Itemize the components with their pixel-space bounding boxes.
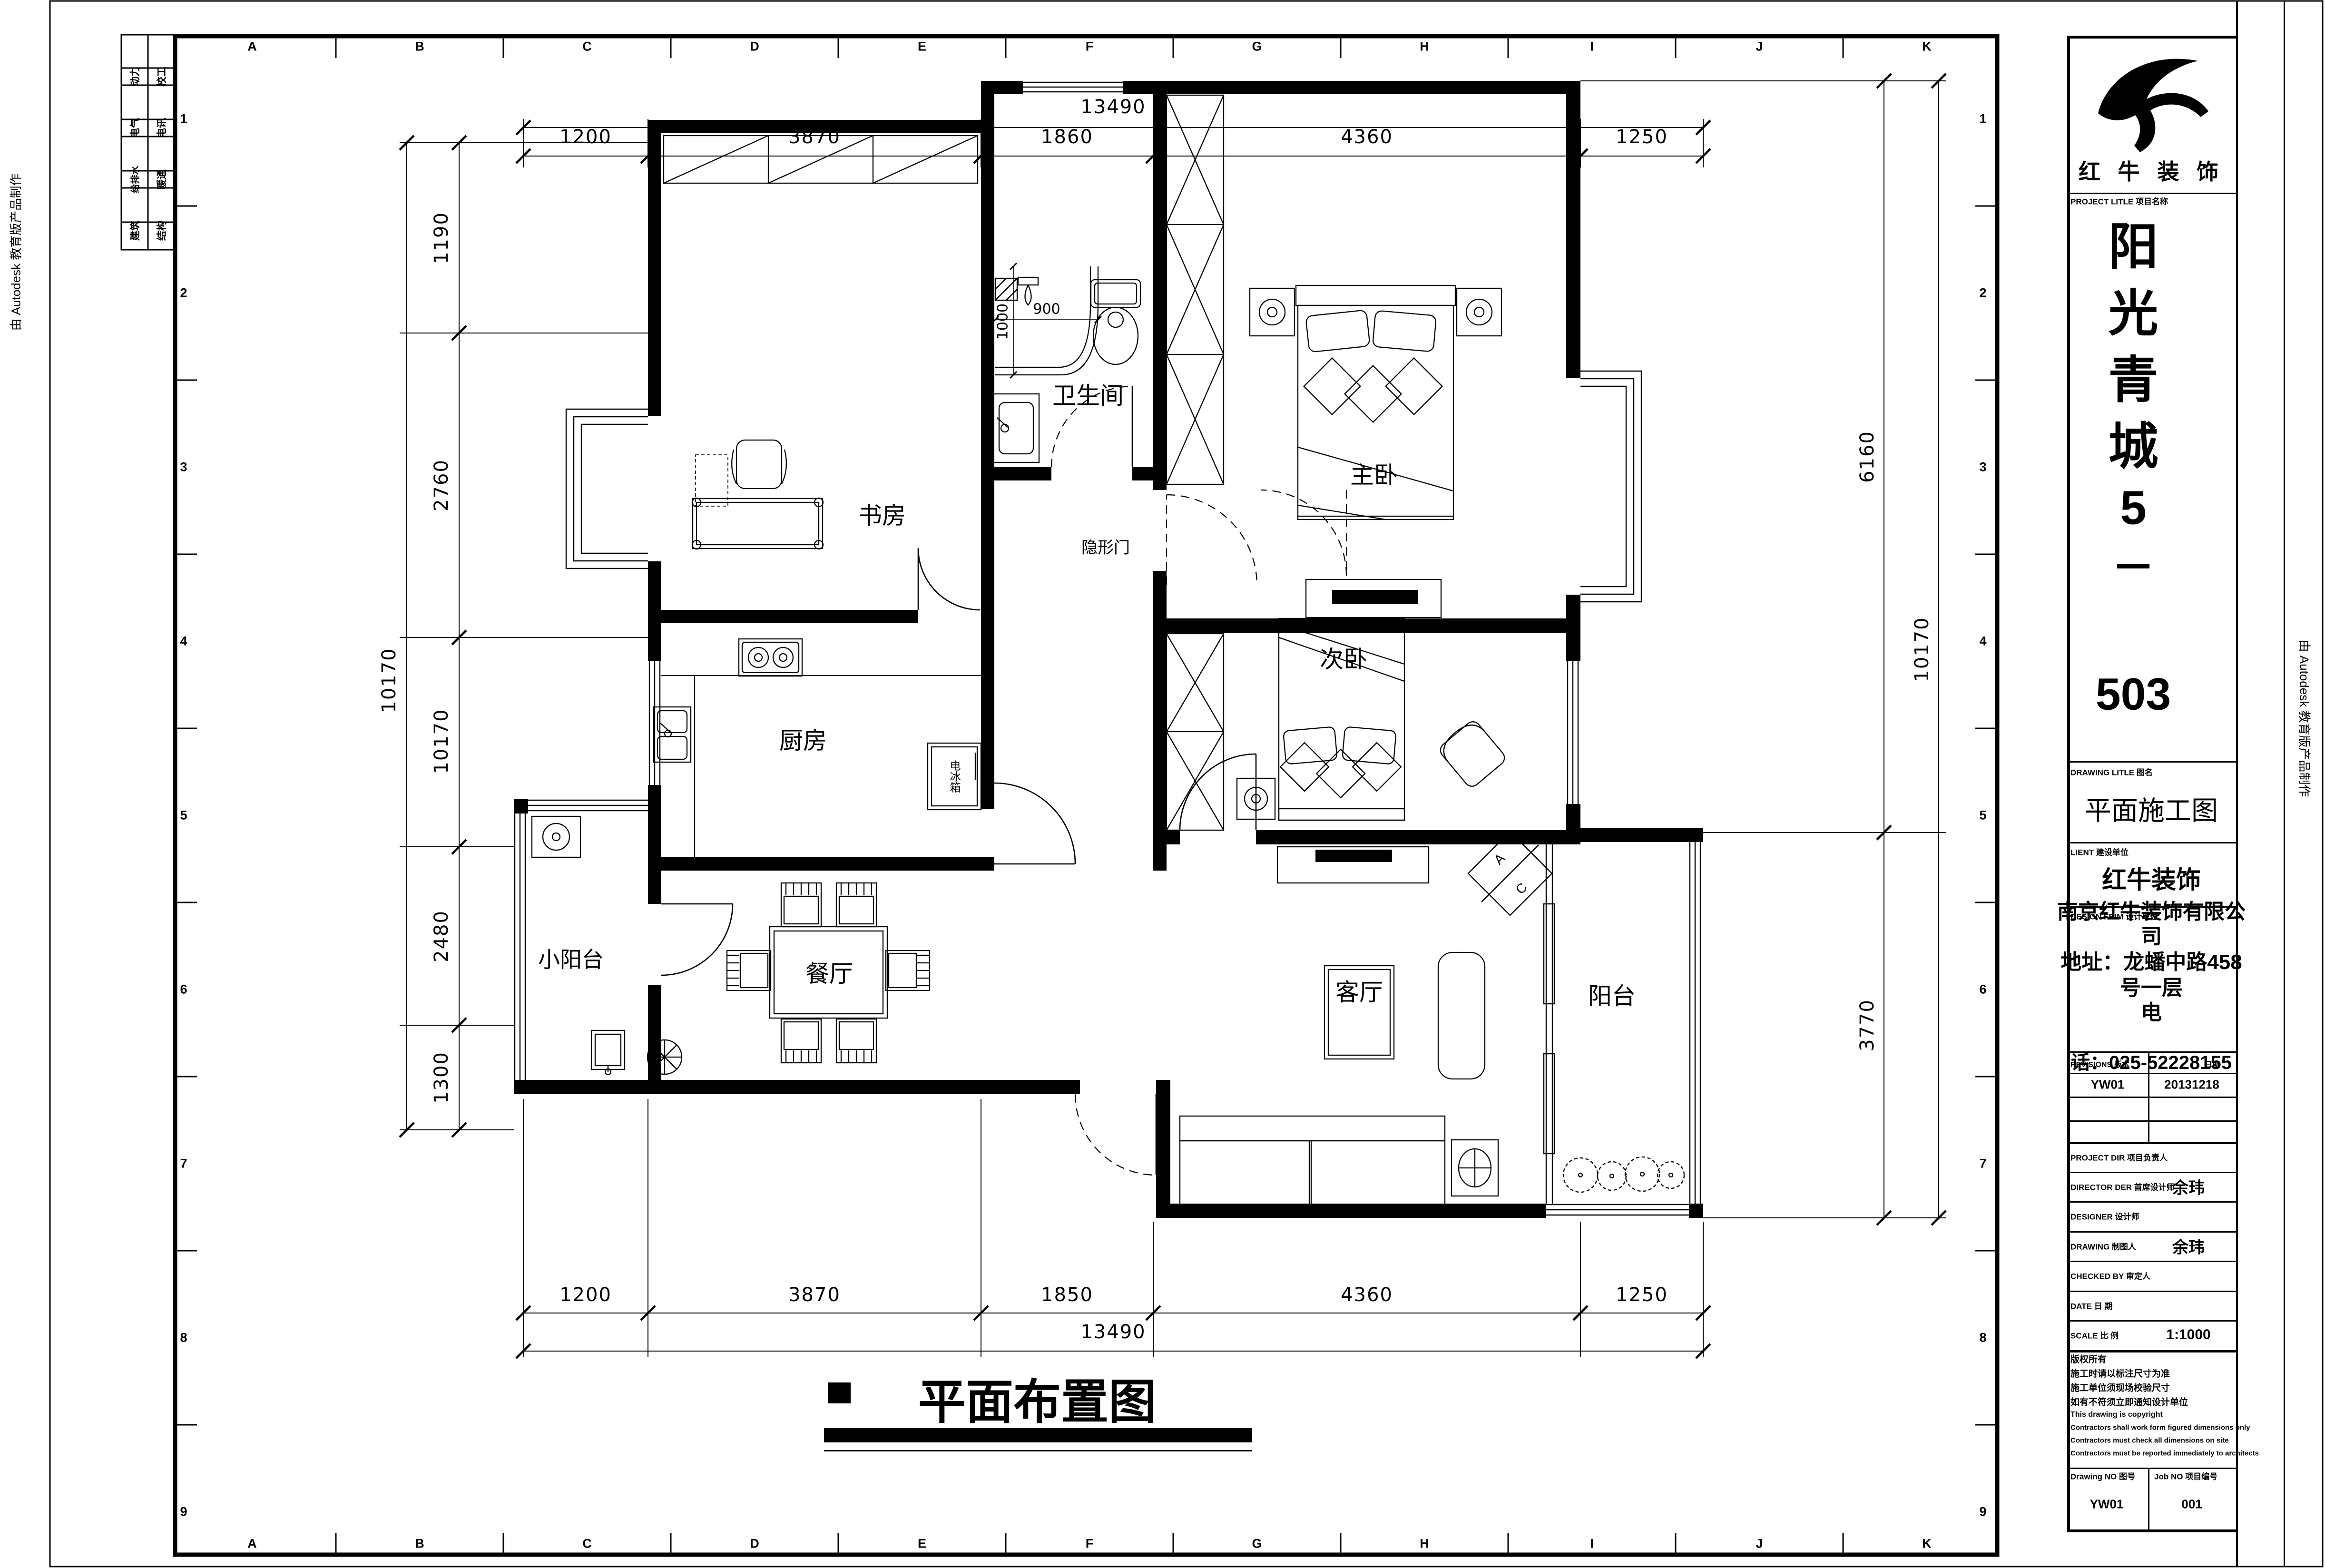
grid-letter: D: [750, 39, 759, 54]
copyright-line: 如有不符须立即通知设计单位: [2070, 1395, 2188, 1408]
discipline-cell: 电气: [128, 118, 142, 138]
discipline-cell: 校工: [154, 67, 168, 87]
grid-letter: E: [918, 39, 926, 54]
grid-letter: G: [1252, 39, 1262, 54]
dim-right-total: 10170: [1911, 617, 1933, 682]
project-label: PROJECT LITLE 项目名称: [2070, 195, 2168, 207]
room-label-second: 次卧: [1320, 640, 1367, 675]
project-name-char: 阳: [2108, 206, 2158, 279]
shower-dim-900: 900: [1033, 301, 1060, 318]
person-row-label: PROJECT DIR 项目负责人: [2070, 1151, 2168, 1163]
client-label: LIENT 建设单位: [2070, 846, 2129, 858]
dimension-lines: [400, 81, 1946, 1357]
dimension-ticks: [400, 74, 1946, 1358]
dim-bottom-seg: 1250: [1616, 1284, 1668, 1306]
grid-number: 1: [180, 112, 187, 127]
floorplan-linework: [0, 0, 2325, 1568]
dim-left-seg: 2760: [431, 459, 452, 511]
autodesk-watermark-right: 由 Autodesk 教育版产品制作: [2296, 640, 2314, 797]
fridge-label: 电冰箱: [946, 760, 962, 793]
grid-letter: B: [415, 1537, 424, 1551]
dim-top-seg: 3870: [788, 126, 841, 148]
title-underline-thin: [824, 1450, 1252, 1451]
shower-dim-1000: 1000: [995, 304, 1011, 340]
grid-number: 5: [180, 808, 187, 823]
project-name-char: －: [2112, 533, 2155, 595]
autodesk-watermark-left: 由 Autodesk 教育版产品制作: [7, 174, 24, 331]
grid-letter: D: [750, 1537, 759, 1551]
copyright-line: 施工单位须现场校验尺寸: [2070, 1381, 2170, 1394]
furniture: [532, 95, 1684, 1210]
copyright-line: 版权所有: [2070, 1352, 2107, 1365]
discipline-cell: 电讯: [154, 118, 168, 138]
person-row-label: DATE 日 期: [2070, 1300, 2112, 1312]
person-row-label: DIRECTOR DER 首席设计师: [2070, 1181, 2175, 1193]
job-no-value: 001: [2181, 1497, 2202, 1512]
person-row-label: DRAWING 制图人: [2070, 1240, 2136, 1252]
project-name-char: 城: [2108, 406, 2158, 479]
person-row-label: CHECKED BY 审定人: [2070, 1270, 2150, 1282]
dim-top-seg: 1860: [1041, 126, 1093, 148]
hidden-door-label: 隐形门: [1081, 535, 1130, 558]
job-no-label: Job NO 项目编号: [2154, 1470, 2217, 1482]
windows: [514, 82, 1703, 1218]
room-label-master: 主卧: [1350, 456, 1398, 490]
person-row-label: DESIGNER 设计师: [2070, 1210, 2139, 1222]
grid-letter: A: [247, 39, 257, 54]
drawing-no-value: YW01: [2090, 1497, 2124, 1512]
copyright-line: This drawing is copyright: [2070, 1411, 2163, 1419]
person-row-value: 余玮: [2172, 1235, 2205, 1258]
dim-left-total: 10170: [378, 647, 400, 713]
room-label-balcony: 阳台: [1588, 977, 1636, 1011]
grid-number: 1: [1979, 112, 1986, 127]
design-firm-line: 电: [2141, 995, 2162, 1026]
copyright-line: 施工时请以标注尺寸为准: [2070, 1367, 2170, 1380]
grid-number: 4: [1979, 634, 1986, 649]
discipline-cell: 给排水: [128, 166, 141, 193]
person-row-label: SCALE 比 例: [2070, 1329, 2119, 1341]
company-name: 红 牛 装 饰: [2079, 155, 2224, 186]
grid-number: 7: [180, 1156, 187, 1171]
copyright-line: Contractors must be reported immediately…: [2070, 1450, 2259, 1458]
project-name-char: 光: [2108, 273, 2158, 345]
grid-number: 8: [1979, 1331, 1986, 1345]
grid-letter: G: [1252, 1537, 1262, 1551]
grid-number: 9: [1979, 1505, 1986, 1519]
title-underline-thick: [824, 1428, 1252, 1442]
dim-top-seg: 1200: [559, 126, 612, 148]
room-label-small-balcony: 小阳台: [538, 942, 604, 974]
revision-date: 20131218: [2164, 1078, 2219, 1092]
person-row-value: 1:1000: [2166, 1327, 2210, 1343]
walls: [514, 81, 1703, 1218]
grid-letter: J: [1756, 1537, 1763, 1551]
grid-letter: K: [1922, 39, 1932, 54]
grid-number: 6: [180, 982, 187, 997]
dim-right-seg: 3770: [1856, 999, 1878, 1051]
room-label-living: 客厅: [1335, 973, 1383, 1008]
room-label-bath: 卫生间: [1052, 377, 1124, 411]
discipline-cell: 建筑: [128, 221, 142, 241]
dim-top-seg: 4360: [1341, 126, 1393, 148]
project-name-char: 5: [2120, 481, 2147, 536]
grid-letter: I: [1590, 39, 1594, 54]
discipline-cell: 动力: [128, 67, 142, 87]
dim-top-seg: 1250: [1616, 126, 1668, 148]
discipline-cell: 结构: [154, 221, 168, 241]
dim-left-seg: 1300: [431, 1051, 452, 1104]
grid-letter: E: [918, 1537, 926, 1551]
dim-bottom-seg: 3870: [788, 1284, 841, 1306]
grid-letter: I: [1590, 1537, 1594, 1551]
project-name-number: 503: [2096, 669, 2171, 721]
dim-bottom-total: 13490: [1080, 1321, 1146, 1343]
discipline-cell: 暖通: [154, 169, 168, 189]
grid-number: 3: [1979, 460, 1986, 475]
client-name: 红牛装饰: [2102, 860, 2201, 896]
drawing-no-label: Drawing NO 图号: [2070, 1470, 2135, 1482]
grid-number: 2: [1979, 286, 1986, 301]
plan-title: 平面布置图: [918, 1363, 1156, 1432]
grid-letter: B: [415, 39, 424, 54]
grid-letter: J: [1756, 39, 1763, 54]
title-corner-mark: [828, 1382, 851, 1403]
dim-right-seg: 6160: [1856, 431, 1878, 483]
grid-letter: F: [1086, 1537, 1094, 1551]
dim-bottom-seg: 1850: [1041, 1284, 1093, 1306]
grid-letter: H: [1420, 1537, 1429, 1551]
project-name-char: 青: [2108, 340, 2158, 412]
copyright-line: Contractors shall work form figured dime…: [2070, 1424, 2250, 1432]
revision-no: YW01: [2091, 1078, 2125, 1092]
grid-letter: C: [582, 1537, 592, 1551]
grid-letter: A: [247, 1537, 257, 1551]
dim-left-seg: 2480: [431, 910, 452, 962]
grid-number: 7: [1979, 1156, 1986, 1171]
grid-letter: C: [582, 39, 592, 54]
grid-number: 4: [180, 634, 187, 649]
drawing-title-label: DRAWING LITLE 图名: [2070, 766, 2153, 778]
grid-number: 5: [1979, 808, 1986, 823]
grid-number: 6: [1979, 982, 1986, 997]
dim-left-seg: 10170: [431, 708, 452, 774]
rednow-bull-logo: [2089, 42, 2222, 156]
grid-letter: K: [1922, 1537, 1932, 1551]
grid-letter: F: [1086, 39, 1094, 54]
grid-number: 3: [180, 460, 187, 475]
copyright-line: Contractors must check all dimensions on…: [2070, 1437, 2229, 1445]
cad-sheet: { "watermark": { "left": "由 Autodesk 教育版…: [0, 0, 2325, 1568]
grid-number: 2: [180, 286, 187, 301]
person-row-value: 余玮: [2172, 1175, 2205, 1198]
drawing-title: 平面施工图: [2085, 790, 2218, 828]
room-label-study: 书房: [858, 497, 906, 531]
dim-bottom-seg: 4360: [1341, 1284, 1393, 1306]
room-label-kitchen: 厨房: [779, 722, 827, 756]
dim-left-seg: 1190: [431, 212, 452, 264]
phone-line: 话：025-52228155: [2071, 1047, 2232, 1075]
dim-top-total: 13490: [1080, 96, 1146, 118]
room-label-dining: 餐厅: [805, 955, 853, 989]
grid-number: 9: [180, 1505, 187, 1519]
grid-letter: H: [1420, 39, 1429, 54]
grid-number: 8: [180, 1331, 187, 1345]
dim-bottom-seg: 1200: [559, 1284, 612, 1306]
